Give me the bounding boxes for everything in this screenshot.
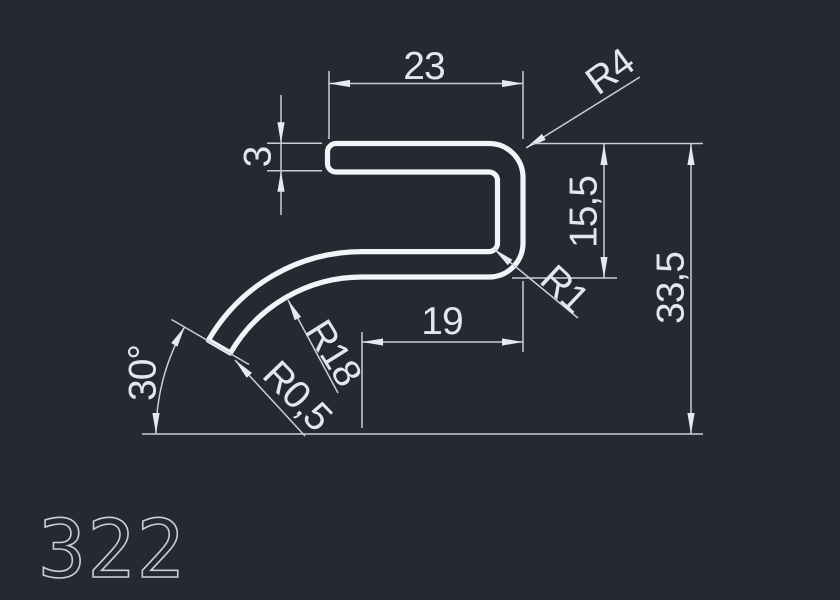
dimension-label: 33,5 bbox=[650, 252, 693, 324]
dimension-label: 15,5 bbox=[563, 176, 606, 248]
angle-label: 30° bbox=[122, 345, 165, 401]
dimension-label: 23 bbox=[403, 45, 444, 88]
dimension-label: 3 bbox=[237, 147, 280, 168]
dimension-label: 19 bbox=[421, 300, 462, 343]
part-number: 322 bbox=[38, 503, 186, 596]
cad-canvas[interactable]: 23 3 R4 15,5 R1 33,5 bbox=[0, 0, 840, 600]
cad-drawing: 23 3 R4 15,5 R1 33,5 bbox=[0, 0, 840, 600]
